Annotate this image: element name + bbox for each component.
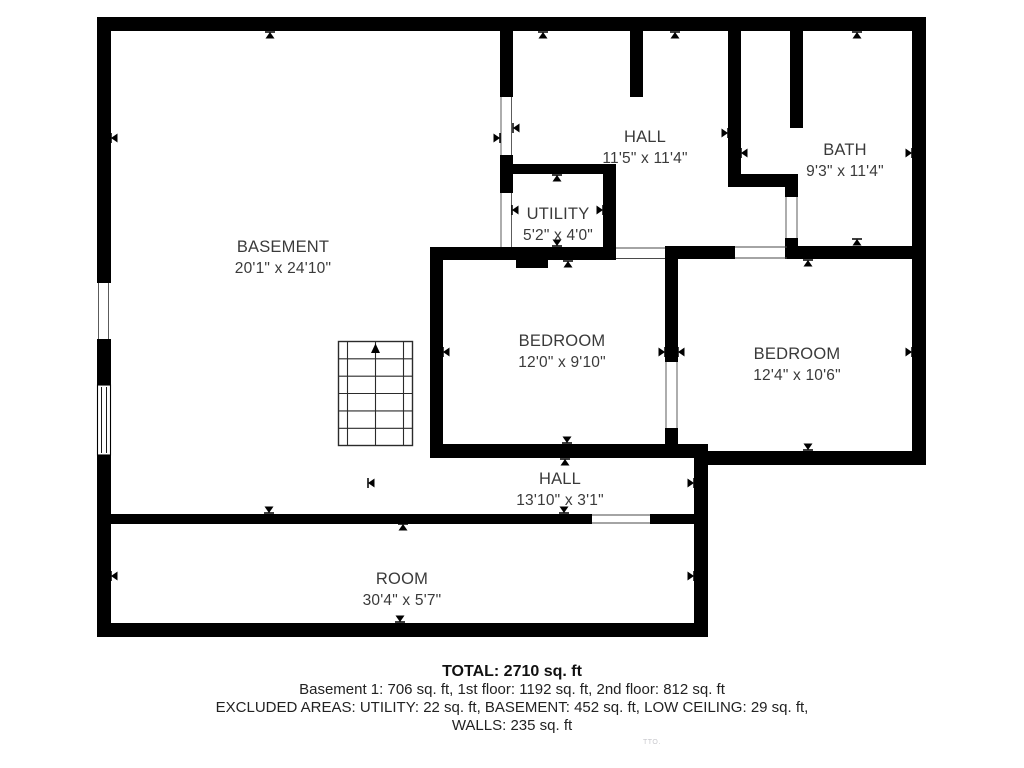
wall-bedroom-divider-upper — [665, 246, 678, 362]
room-dimensions: 12'4" x 10'6" — [753, 365, 841, 387]
room-name: BEDROOM — [518, 330, 606, 352]
wall-bath-left-post-lower — [785, 238, 798, 259]
wall-bath-bottom — [787, 246, 926, 259]
floor-plan-page: BASEMENT 20'1" x 24'10" HALL 11'5" x 11'… — [0, 0, 1024, 768]
room-name: HALL — [516, 468, 604, 490]
wall-bedroom1-top — [430, 247, 616, 260]
wall-left-upper — [97, 17, 111, 283]
room-label-utility: UTILITY 5'2" x 4'0" — [523, 203, 593, 247]
room-label-bath: BATH 9'3" x 11'4" — [806, 139, 884, 183]
room-name: BEDROOM — [753, 343, 841, 365]
room-dimensions: 11'5" x 11'4" — [602, 148, 687, 170]
wall-bath-entry — [790, 17, 803, 128]
wall-left-lower — [97, 455, 111, 637]
area-summary: TOTAL: 2710 sq. ft Basement 1: 706 sq. f… — [0, 662, 1024, 735]
stairs-icon — [339, 342, 413, 446]
wall-hall2-right-piece — [650, 514, 694, 524]
watermark: TTO. — [643, 739, 661, 746]
summary-excluded: EXCLUDED AREAS: UTILITY: 22 sq. ft, BASE… — [0, 699, 1024, 717]
wall-right — [912, 17, 926, 465]
wall-pilaster — [516, 260, 548, 268]
room-name: UTILITY — [523, 203, 593, 225]
room-label-hall-upper: HALL 11'5" x 11'4" — [602, 126, 687, 170]
wall-hall-bath-divider — [728, 17, 741, 177]
room-label-bedroom-1: BEDROOM 12'0" x 9'10" — [518, 330, 606, 374]
room-label-bedroom-2: BEDROOM 12'4" x 10'6" — [753, 343, 841, 387]
wall-utility-top — [500, 164, 616, 174]
wall-bedroom1-bottom — [430, 444, 708, 458]
summary-total: TOTAL: 2710 sq. ft — [0, 662, 1024, 681]
room-dimensions: 20'1" x 24'10" — [235, 258, 331, 280]
room-dimensions: 9'3" x 11'4" — [806, 161, 884, 183]
room-label-room: ROOM 30'4" x 5'7" — [363, 568, 442, 612]
wall-room-right — [694, 444, 708, 637]
wall-bedroom2-bottom — [700, 451, 926, 465]
room-dimensions: 13'10" x 3'1" — [516, 490, 604, 512]
room-label-basement: BASEMENT 20'1" x 24'10" — [235, 236, 331, 280]
wall-utility-right — [603, 164, 616, 259]
wall-hall-left-upper — [500, 31, 513, 97]
wall-bottom — [97, 623, 708, 637]
stairs-up-arrow-icon — [371, 344, 380, 354]
wall-hall-partition — [630, 31, 643, 97]
wall-jog — [728, 174, 798, 187]
room-name: ROOM — [363, 568, 442, 590]
room-dimensions: 30'4" x 5'7" — [363, 590, 442, 612]
window-icon — [98, 385, 111, 455]
summary-walls: WALLS: 235 sq. ft — [0, 717, 1024, 735]
summary-floors: Basement 1: 706 sq. ft, 1st floor: 1192 … — [0, 681, 1024, 699]
wall-left-mid — [97, 339, 111, 385]
floor-plan-drawing — [0, 0, 1024, 768]
room-dimensions: 5'2" x 4'0" — [523, 225, 593, 247]
room-dimensions: 12'0" x 9'10" — [518, 352, 606, 374]
room-name: BATH — [806, 139, 884, 161]
room-label-hall-lower: HALL 13'10" x 3'1" — [516, 468, 604, 512]
door-openings — [99, 97, 798, 523]
room-name: BASEMENT — [235, 236, 331, 258]
wall-hall2-long — [97, 514, 592, 524]
wall-bedroom1-left — [430, 247, 443, 458]
wall-hall-bedroom2 — [668, 246, 735, 259]
wall-bath-left-post-upper — [785, 187, 798, 197]
room-name: HALL — [602, 126, 687, 148]
